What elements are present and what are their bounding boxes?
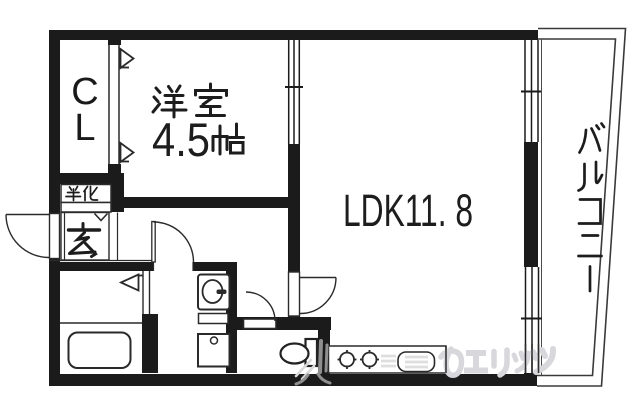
- svg-text:LDK11. 8: LDK11. 8: [343, 185, 473, 236]
- svg-text:L: L: [74, 107, 95, 149]
- svg-text:4.5: 4.5: [152, 113, 210, 166]
